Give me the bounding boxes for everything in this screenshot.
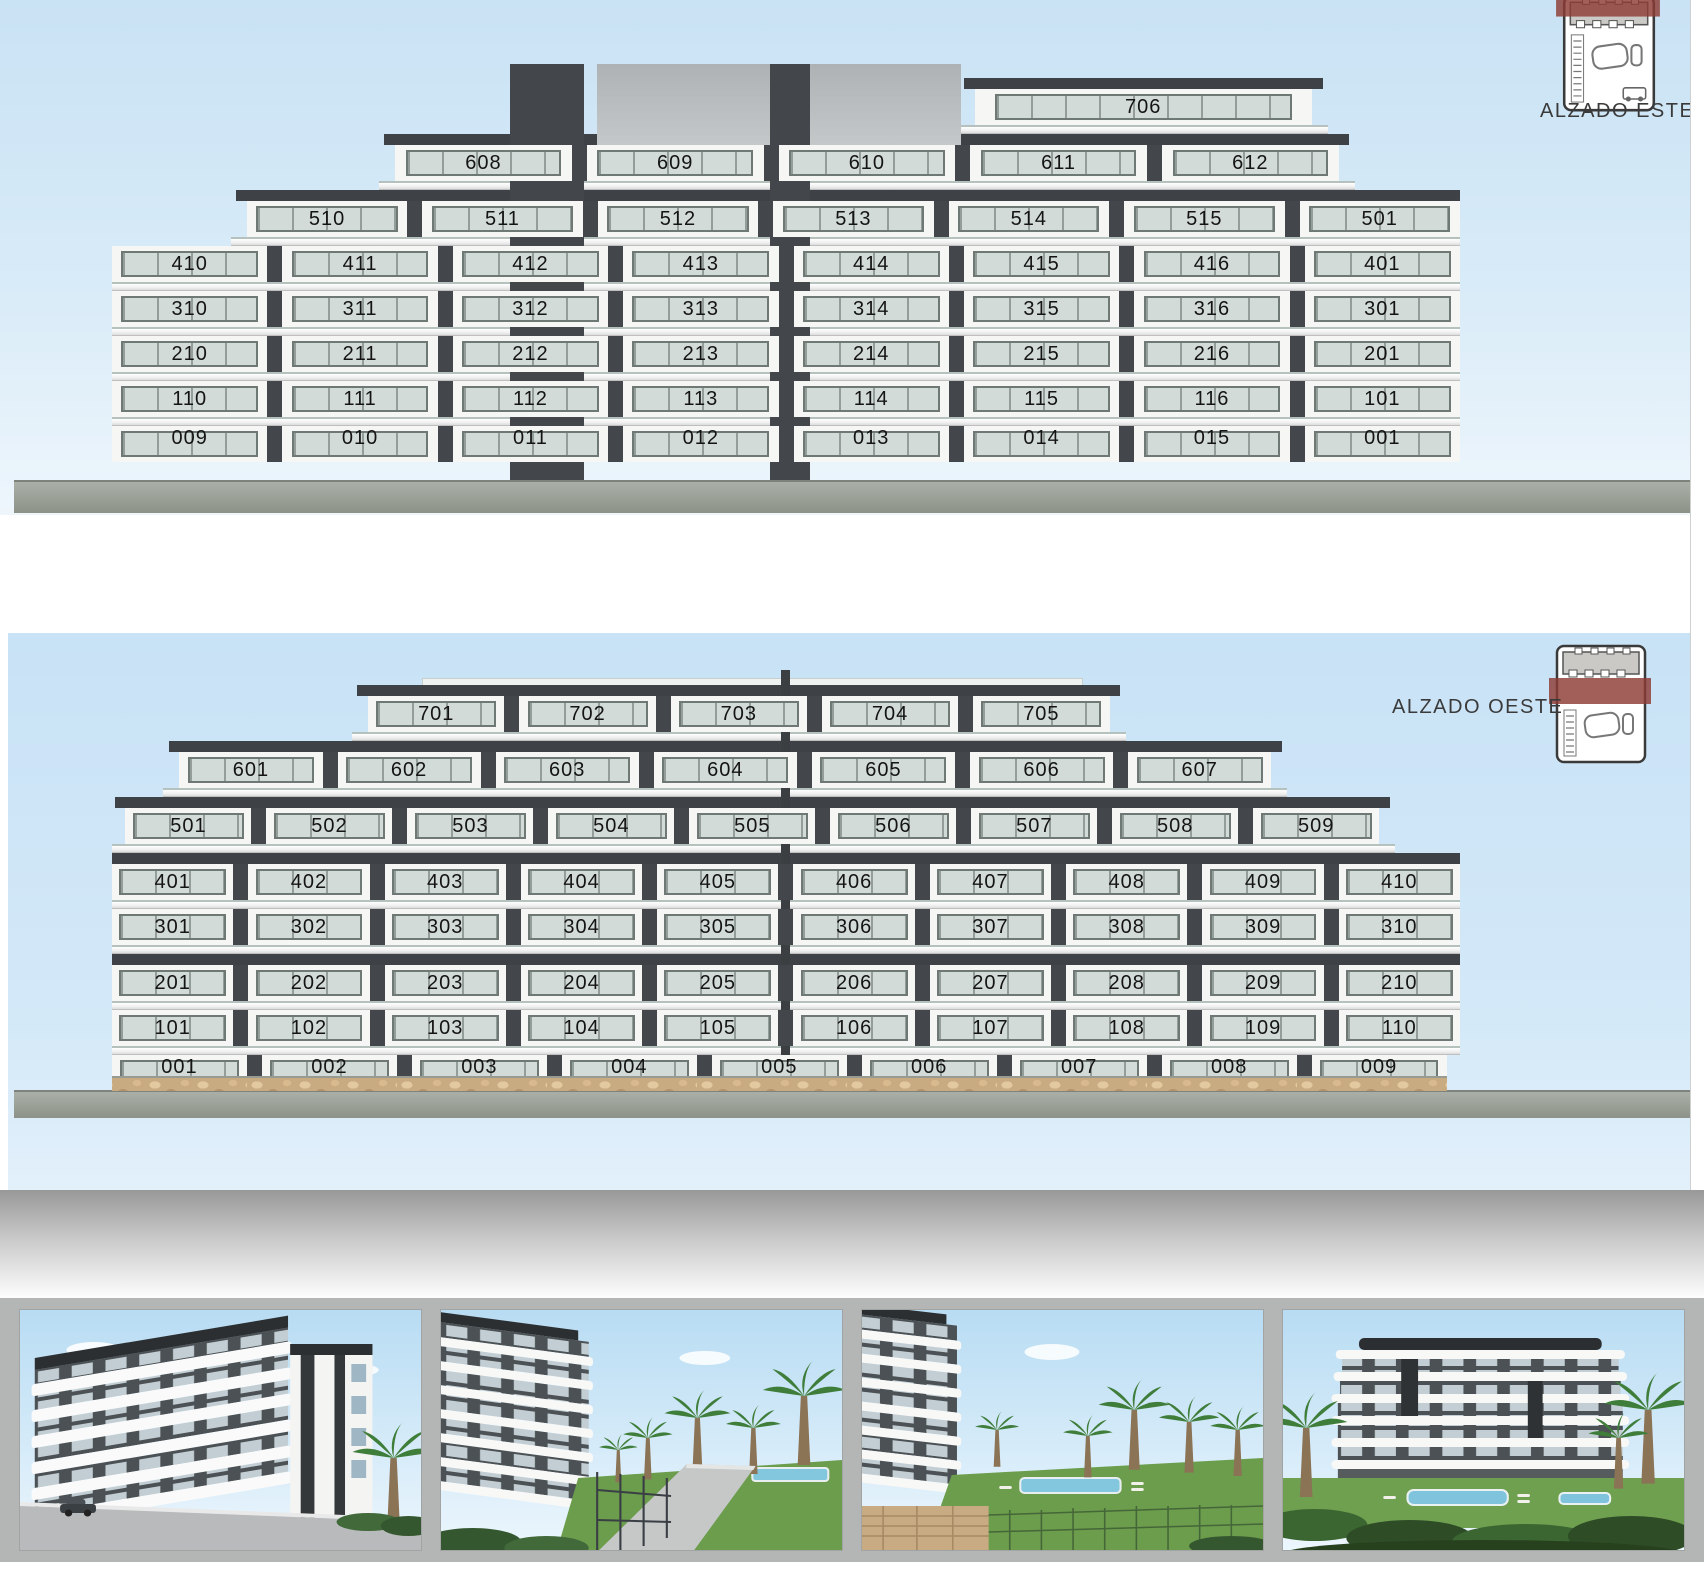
unit-number: 605 xyxy=(865,759,901,782)
unit-number: 515 xyxy=(1186,208,1222,231)
balcony-slab xyxy=(352,732,1126,741)
unit-005: 005 xyxy=(697,1055,847,1091)
unit-507: 507 xyxy=(956,808,1097,844)
unit-number: 211 xyxy=(343,343,378,366)
unit-number: 415 xyxy=(1023,253,1059,276)
unit-314: 314 xyxy=(779,291,949,327)
render-garden-pool-view-image xyxy=(862,1310,1263,1550)
unit-number: 606 xyxy=(1023,759,1059,782)
unit-number: 410 xyxy=(1381,871,1417,894)
unit-305: 305 xyxy=(642,909,778,945)
unit-number: 013 xyxy=(853,427,889,450)
unit-401: 401 xyxy=(1290,246,1460,282)
unit-604: 604 xyxy=(639,752,797,788)
unit-number: 308 xyxy=(1109,916,1145,939)
unit-407: 407 xyxy=(915,864,1051,900)
unit-number: 416 xyxy=(1194,253,1230,276)
unit-number: 010 xyxy=(342,427,378,450)
unit-number: 311 xyxy=(343,298,378,321)
unit-number: 210 xyxy=(1381,972,1417,995)
unit-411: 411 xyxy=(267,246,437,282)
unit-number: 204 xyxy=(563,972,599,995)
unit-108: 108 xyxy=(1051,1010,1187,1046)
unit-number: 306 xyxy=(836,916,872,939)
unit-number: 401 xyxy=(154,871,190,894)
stone-wall xyxy=(1147,1076,1297,1091)
unit-105: 105 xyxy=(642,1010,778,1046)
unit-009: 009 xyxy=(1297,1055,1447,1091)
oeste-floor-6: 601602603604605606607 xyxy=(179,752,1271,788)
unit-number: 109 xyxy=(1245,1017,1281,1040)
unit-312: 312 xyxy=(438,291,608,327)
unit-number: 103 xyxy=(427,1017,463,1040)
unit-number: 405 xyxy=(700,871,736,894)
unit-number: 701 xyxy=(418,703,454,726)
este-floor-6: 608609610611612 xyxy=(395,145,1339,181)
unit-608: 608 xyxy=(395,145,572,181)
unit-number: 501 xyxy=(170,815,206,838)
unit-number: 206 xyxy=(836,972,872,995)
unit-311: 311 xyxy=(267,291,437,327)
unit-number: 601 xyxy=(233,759,269,782)
unit-012: 012 xyxy=(608,426,778,462)
unit-512: 512 xyxy=(583,201,758,237)
unit-415: 415 xyxy=(949,246,1119,282)
oeste-floor-0: 001002003004005006007008009 xyxy=(112,1055,1447,1091)
unit-number: 413 xyxy=(683,253,719,276)
unit-number: 410 xyxy=(172,253,208,276)
unit-401: 401 xyxy=(112,864,233,900)
unit-number: 408 xyxy=(1109,871,1145,894)
unit-204: 204 xyxy=(506,965,642,1001)
render-walkway-pool-view xyxy=(441,1310,842,1550)
unit-313: 313 xyxy=(608,291,778,327)
balcony-slab xyxy=(112,844,1395,853)
unit-number: 304 xyxy=(563,916,599,939)
unit-209: 209 xyxy=(1187,965,1323,1001)
unit-number: 315 xyxy=(1023,298,1059,321)
unit-215: 215 xyxy=(949,336,1119,372)
roof-band xyxy=(357,685,1120,696)
unit-number: 604 xyxy=(707,759,743,782)
unit-113: 113 xyxy=(608,381,778,417)
unit-514: 514 xyxy=(934,201,1109,237)
unit-104: 104 xyxy=(506,1010,642,1046)
unit-number: 106 xyxy=(836,1017,872,1040)
unit-number: 507 xyxy=(1016,815,1052,838)
unit-214: 214 xyxy=(779,336,949,372)
render-corner-street-view xyxy=(20,1310,421,1550)
elevation-label-east: ALZADO ESTE xyxy=(1540,100,1680,123)
stone-wall xyxy=(397,1076,547,1091)
unit-number: 316 xyxy=(1194,298,1230,321)
unit-number: 512 xyxy=(660,208,696,231)
unit-number: 508 xyxy=(1157,815,1193,838)
unit-001: 001 xyxy=(112,1055,247,1091)
unit-006: 006 xyxy=(847,1055,997,1091)
unit-410: 410 xyxy=(1324,864,1460,900)
unit-number: 404 xyxy=(563,871,599,894)
unit-416: 416 xyxy=(1119,246,1289,282)
unit-number: 209 xyxy=(1245,972,1281,995)
unit-310: 310 xyxy=(112,291,267,327)
roof-band xyxy=(115,797,1390,808)
unit-number: 612 xyxy=(1232,152,1268,175)
ground-line xyxy=(14,1090,1690,1118)
unit-101: 101 xyxy=(1290,381,1460,417)
roof-band xyxy=(169,741,1282,752)
unit-704: 704 xyxy=(807,696,958,732)
unit-503: 503 xyxy=(392,808,533,844)
unit-number: 312 xyxy=(512,298,548,321)
unit-number: 609 xyxy=(657,152,693,175)
roof-band xyxy=(964,78,1323,89)
unit-112: 112 xyxy=(438,381,608,417)
este-floor-7: 706 xyxy=(975,89,1312,125)
render-garden-pool-view xyxy=(862,1310,1263,1550)
stone-wall xyxy=(697,1076,847,1091)
unit-208: 208 xyxy=(1051,965,1187,1001)
unit-number: 704 xyxy=(872,703,908,726)
unit-511: 511 xyxy=(407,201,582,237)
unit-008: 008 xyxy=(1147,1055,1297,1091)
roof-band xyxy=(236,190,1460,201)
unit-number: 509 xyxy=(1298,815,1334,838)
unit-number: 310 xyxy=(172,298,208,321)
unit-302: 302 xyxy=(233,909,369,945)
unit-number: 112 xyxy=(513,388,548,411)
unit-number: 116 xyxy=(1194,388,1229,411)
unit-010: 010 xyxy=(267,426,437,462)
unit-number: 412 xyxy=(512,253,548,276)
unit-610: 610 xyxy=(764,145,956,181)
unit-number: 111 xyxy=(343,388,376,411)
este-floor-5: 510511512513514515501 xyxy=(247,201,1460,237)
unit-number: 513 xyxy=(835,208,871,231)
unit-number: 314 xyxy=(853,298,889,321)
unit-number: 011 xyxy=(513,427,548,450)
unit-number: 201 xyxy=(1364,343,1400,366)
unit-216: 216 xyxy=(1119,336,1289,372)
unit-004: 004 xyxy=(547,1055,697,1091)
unit-413: 413 xyxy=(608,246,778,282)
oeste-floor-3: 301302303304305306307308309310 xyxy=(112,909,1460,945)
unit-316: 316 xyxy=(1119,291,1289,327)
unit-number: 703 xyxy=(721,703,757,726)
unit-102: 102 xyxy=(233,1010,369,1046)
stone-wall xyxy=(847,1076,997,1091)
unit-number: 506 xyxy=(875,815,911,838)
unit-007: 007 xyxy=(997,1055,1147,1091)
unit-207: 207 xyxy=(915,965,1051,1001)
unit-705: 705 xyxy=(958,696,1109,732)
oeste-floor-4: 401402403404405406407408409410 xyxy=(112,864,1460,900)
unit-number: 114 xyxy=(854,388,889,411)
unit-number: 302 xyxy=(291,916,327,939)
unit-number: 012 xyxy=(683,427,719,450)
unit-number: 202 xyxy=(291,972,327,995)
unit-107: 107 xyxy=(915,1010,1051,1046)
unit-number: 205 xyxy=(700,972,736,995)
unit-114: 114 xyxy=(779,381,949,417)
unit-number: 301 xyxy=(154,916,190,939)
render-panoramic-garden-view xyxy=(1283,1310,1684,1550)
unit-number: 511 xyxy=(485,208,520,231)
unit-number: 105 xyxy=(700,1017,736,1040)
stone-wall xyxy=(247,1076,397,1091)
unit-501: 501 xyxy=(125,808,251,844)
unit-509: 509 xyxy=(1238,808,1379,844)
unit-015: 015 xyxy=(1119,426,1289,462)
unit-number: 303 xyxy=(427,916,463,939)
unit-611: 611 xyxy=(955,145,1147,181)
unit-number: 110 xyxy=(1382,1017,1417,1040)
stone-wall xyxy=(1297,1076,1447,1091)
unit-306: 306 xyxy=(778,909,914,945)
unit-number: 210 xyxy=(172,343,208,366)
unit-510: 510 xyxy=(247,201,407,237)
unit-number: 505 xyxy=(734,815,770,838)
unit-502: 502 xyxy=(251,808,392,844)
unit-number: 213 xyxy=(683,343,719,366)
unit-number: 411 xyxy=(343,253,378,276)
unit-number: 602 xyxy=(391,759,427,782)
unit-number: 207 xyxy=(972,972,1008,995)
unit-number: 309 xyxy=(1245,916,1281,939)
balcony-slab xyxy=(231,237,1460,246)
unit-111: 111 xyxy=(267,381,437,417)
unit-304: 304 xyxy=(506,909,642,945)
unit-009: 009 xyxy=(112,426,267,462)
unit-106: 106 xyxy=(778,1010,914,1046)
unit-310: 310 xyxy=(1324,909,1460,945)
unit-605: 605 xyxy=(797,752,955,788)
unit-409: 409 xyxy=(1187,864,1323,900)
unit-number: 115 xyxy=(1024,388,1059,411)
gradient-divider xyxy=(0,1190,1704,1298)
unit-number: 102 xyxy=(291,1017,327,1040)
unit-213: 213 xyxy=(608,336,778,372)
unit-301: 301 xyxy=(112,909,233,945)
unit-number: 503 xyxy=(452,815,488,838)
unit-506: 506 xyxy=(815,808,956,844)
west-elevation-drawing: 7017027037047056016026036046056066075015… xyxy=(112,678,1460,1091)
unit-003: 003 xyxy=(397,1055,547,1091)
balcony-slab xyxy=(959,125,1328,134)
unit-307: 307 xyxy=(915,909,1051,945)
unit-205: 205 xyxy=(642,965,778,1001)
unit-701: 701 xyxy=(368,696,504,732)
unit-602: 602 xyxy=(323,752,481,788)
unit-number: 307 xyxy=(972,916,1008,939)
unit-513: 513 xyxy=(758,201,933,237)
render-panoramic-garden-view-image xyxy=(1283,1310,1684,1550)
unit-number: 203 xyxy=(427,972,463,995)
unit-408: 408 xyxy=(1051,864,1187,900)
unit-number: 101 xyxy=(154,1017,190,1040)
unit-609: 609 xyxy=(572,145,764,181)
unit-number: 510 xyxy=(309,208,345,231)
unit-203: 203 xyxy=(370,965,506,1001)
sheet-margin xyxy=(1690,0,1704,1190)
unit-212: 212 xyxy=(438,336,608,372)
unit-404: 404 xyxy=(506,864,642,900)
unit-501: 501 xyxy=(1285,201,1460,237)
balcony-slab xyxy=(163,788,1287,797)
unit-101: 101 xyxy=(112,1010,233,1046)
unit-403: 403 xyxy=(370,864,506,900)
unit-number: 414 xyxy=(853,253,889,276)
unit-601: 601 xyxy=(179,752,322,788)
unit-210: 210 xyxy=(1324,965,1460,1001)
unit-210: 210 xyxy=(112,336,267,372)
unit-number: 502 xyxy=(311,815,347,838)
oeste-floor-2: 201202203204205206207208209210 xyxy=(112,965,1460,1001)
unit-number: 110 xyxy=(172,388,207,411)
unit-211: 211 xyxy=(267,336,437,372)
unit-number: 001 xyxy=(1364,427,1400,450)
unit-number: 403 xyxy=(427,871,463,894)
unit-201: 201 xyxy=(1290,336,1460,372)
unit-504: 504 xyxy=(533,808,674,844)
unit-number: 702 xyxy=(569,703,605,726)
unit-412: 412 xyxy=(438,246,608,282)
unit-number: 705 xyxy=(1023,703,1059,726)
unit-number: 706 xyxy=(1125,96,1161,119)
unit-number: 215 xyxy=(1023,343,1059,366)
unit-number: 603 xyxy=(549,759,585,782)
unit-706: 706 xyxy=(975,89,1312,125)
unit-410: 410 xyxy=(112,246,267,282)
unit-116: 116 xyxy=(1119,381,1289,417)
unit-number: 101 xyxy=(1364,388,1400,411)
unit-number: 504 xyxy=(593,815,629,838)
este-floor-4: 410411412413414415416401 xyxy=(112,246,1460,282)
unit-013: 013 xyxy=(779,426,949,462)
unit-number: 313 xyxy=(683,298,719,321)
stone-wall xyxy=(997,1076,1147,1091)
unit-110: 110 xyxy=(112,381,267,417)
unit-number: 402 xyxy=(291,871,327,894)
unit-206: 206 xyxy=(778,965,914,1001)
unit-505: 505 xyxy=(674,808,815,844)
este-floor-0: 009010011012013014015001 xyxy=(112,426,1460,462)
unit-303: 303 xyxy=(370,909,506,945)
unit-115: 115 xyxy=(949,381,1119,417)
render-walkway-pool-view-image xyxy=(441,1310,842,1550)
unit-612: 612 xyxy=(1147,145,1339,181)
east-elevation-drawing: 7066086096106116125105115125135145155014… xyxy=(112,78,1460,462)
ground-line xyxy=(14,480,1690,513)
elevation-label-west: ALZADO OESTE xyxy=(1392,696,1537,719)
unit-014: 014 xyxy=(949,426,1119,462)
unit-number: 514 xyxy=(1011,208,1047,231)
unit-number: 409 xyxy=(1245,871,1281,894)
unit-number: 214 xyxy=(853,343,889,366)
unit-number: 208 xyxy=(1109,972,1145,995)
unit-202: 202 xyxy=(233,965,369,1001)
unit-702: 702 xyxy=(504,696,655,732)
unit-001: 001 xyxy=(1290,426,1460,462)
unit-703: 703 xyxy=(656,696,807,732)
unit-606: 606 xyxy=(955,752,1113,788)
unit-number: 501 xyxy=(1362,208,1398,231)
unit-607: 607 xyxy=(1113,752,1271,788)
este-floor-1: 110111112113114115116101 xyxy=(112,381,1460,417)
unit-011: 011 xyxy=(438,426,608,462)
stone-wall xyxy=(547,1076,697,1091)
unit-402: 402 xyxy=(233,864,369,900)
unit-number: 401 xyxy=(1364,253,1400,276)
unit-number: 407 xyxy=(972,871,1008,894)
unit-308: 308 xyxy=(1051,909,1187,945)
unit-508: 508 xyxy=(1097,808,1238,844)
unit-103: 103 xyxy=(370,1010,506,1046)
unit-number: 104 xyxy=(563,1017,599,1040)
unit-405: 405 xyxy=(642,864,778,900)
unit-109: 109 xyxy=(1187,1010,1323,1046)
unit-number: 607 xyxy=(1182,759,1218,782)
site-plan-key-east-icon xyxy=(1552,0,1664,116)
unit-number: 608 xyxy=(465,152,501,175)
este-floor-2: 210211212213214215216201 xyxy=(112,336,1460,372)
unit-number: 611 xyxy=(1041,152,1076,175)
unit-number: 113 xyxy=(683,388,718,411)
east-elevation-section: 7066086096106116125105115125135145155014… xyxy=(0,0,1704,515)
unit-number: 015 xyxy=(1194,427,1230,450)
unit-number: 305 xyxy=(700,916,736,939)
oeste-floor-5: 501502503504505506507508509 xyxy=(125,808,1379,844)
unit-number: 301 xyxy=(1364,298,1400,321)
unit-number: 610 xyxy=(849,152,885,175)
unit-number: 014 xyxy=(1023,427,1059,450)
unit-002: 002 xyxy=(247,1055,397,1091)
oeste-floor-1: 101102103104105106107108109110 xyxy=(112,1010,1460,1046)
unit-number: 201 xyxy=(154,972,190,995)
unit-number: 310 xyxy=(1381,916,1417,939)
unit-number: 108 xyxy=(1109,1017,1145,1040)
unit-406: 406 xyxy=(778,864,914,900)
render-corner-street-view-image xyxy=(20,1310,421,1550)
unit-number: 009 xyxy=(172,427,208,450)
oeste-floor-7: 701702703704705 xyxy=(368,696,1109,732)
unit-309: 309 xyxy=(1187,909,1323,945)
unit-number: 107 xyxy=(972,1017,1008,1040)
unit-number: 216 xyxy=(1194,343,1230,366)
unit-number: 212 xyxy=(512,343,548,366)
unit-414: 414 xyxy=(779,246,949,282)
unit-301: 301 xyxy=(1290,291,1460,327)
unit-110: 110 xyxy=(1324,1010,1460,1046)
unit-515: 515 xyxy=(1109,201,1284,237)
render-photo-strip xyxy=(0,1298,1704,1562)
unit-603: 603 xyxy=(481,752,639,788)
rooftop-rail xyxy=(422,678,1083,685)
unit-315: 315 xyxy=(949,291,1119,327)
site-plan-key-east-icon xyxy=(1552,0,1664,116)
este-floor-3: 310311312313314315316301 xyxy=(112,291,1460,327)
unit-number: 406 xyxy=(836,871,872,894)
stone-wall xyxy=(112,1076,247,1091)
unit-201: 201 xyxy=(112,965,233,1001)
west-elevation-section: 7017027037047056016026036046056066075015… xyxy=(0,515,1704,1190)
